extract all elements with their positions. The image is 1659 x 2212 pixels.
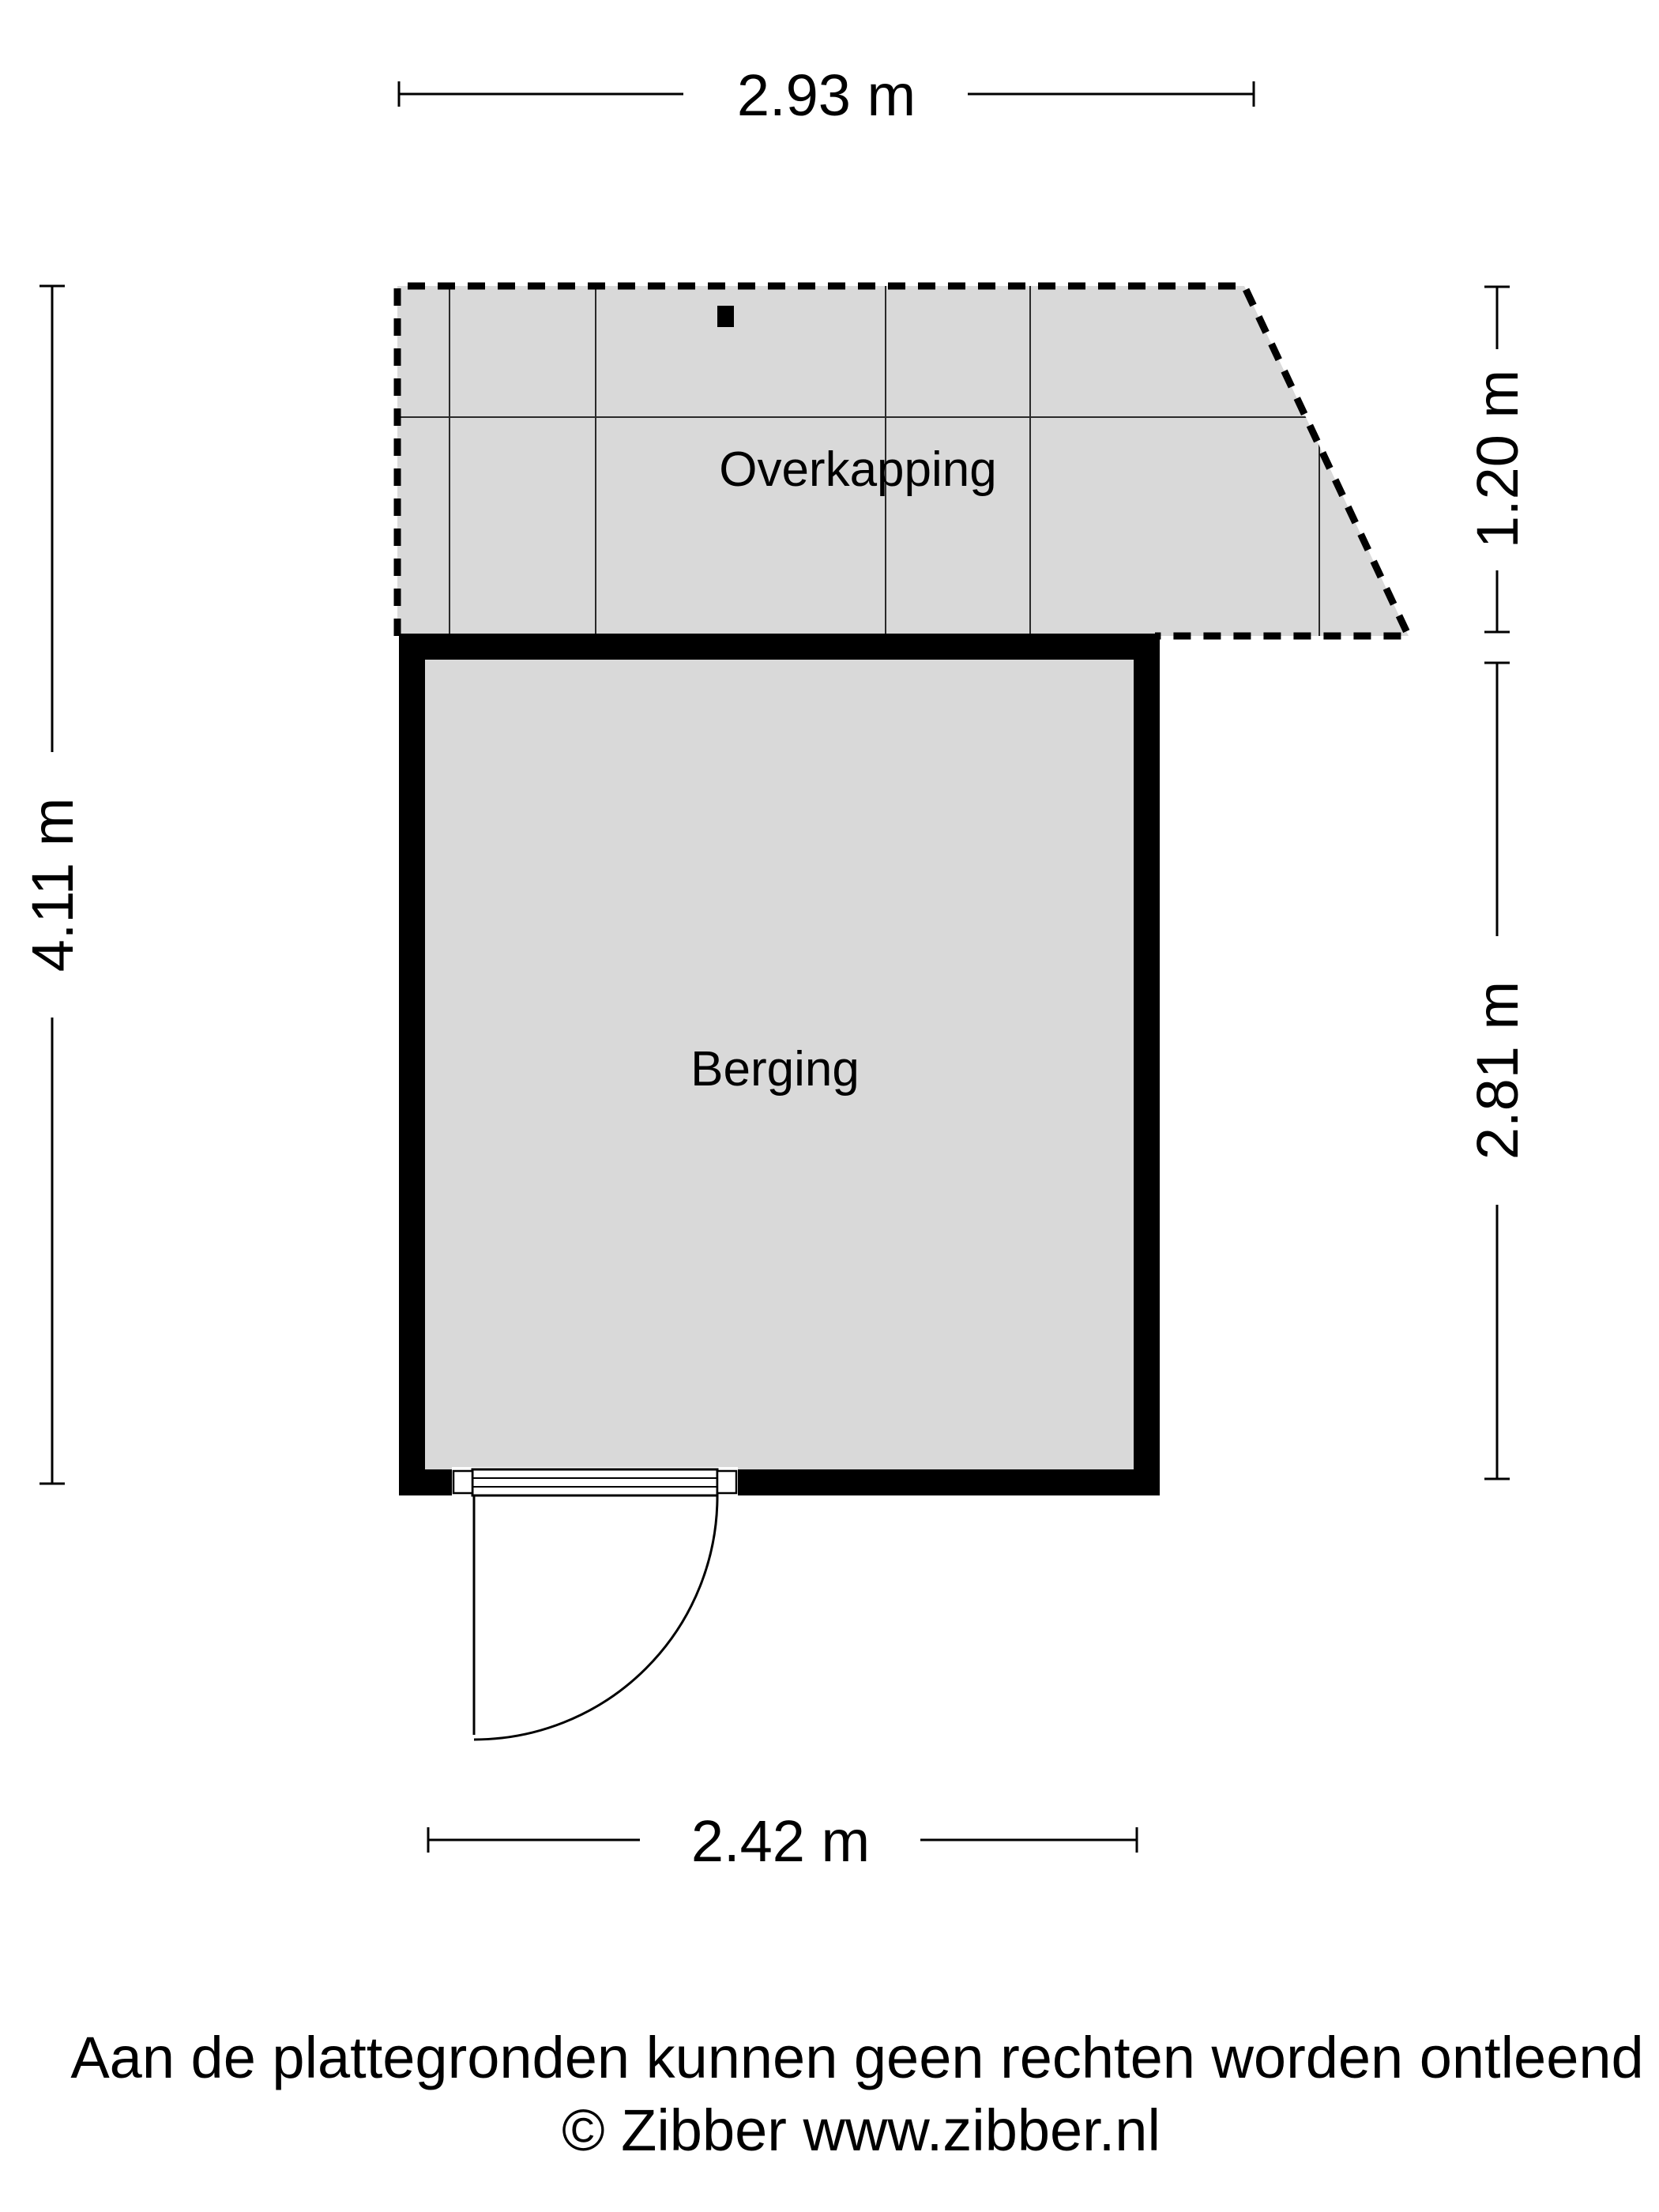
door xyxy=(474,1496,717,1740)
footer: Aan de plattegronden kunnen geen rechten… xyxy=(70,2025,1643,2163)
dimension-right-bottom-label: 2.81 m xyxy=(1465,981,1530,1160)
footer-copyright: © Zibber www.zibber.nl xyxy=(562,2097,1161,2163)
door-swing-arc xyxy=(474,1496,717,1740)
dimension-left-label: 4.11 m xyxy=(20,798,85,972)
dimension-top-label: 2.93 m xyxy=(737,62,916,128)
footer-disclaimer: Aan de plattegronden kunnen geen rechten… xyxy=(70,2025,1643,2090)
floorplan-canvas: 2.93 m 4.11 m 1.20 m 2.81 m 2.42 m Overk… xyxy=(0,0,1659,2212)
berging-label: Berging xyxy=(690,1042,860,1097)
door-jamb-left xyxy=(453,1471,472,1493)
dimension-right-top-label: 1.20 m xyxy=(1465,370,1530,548)
overkapping-label: Overkapping xyxy=(719,442,997,497)
door-opening xyxy=(452,1467,738,1498)
dimension-bottom-label: 2.42 m xyxy=(691,1808,870,1874)
door-sill xyxy=(472,1469,717,1495)
door-jamb-right xyxy=(717,1471,736,1493)
overkapping-post-marker xyxy=(717,306,734,327)
berging-room xyxy=(399,634,1160,1740)
